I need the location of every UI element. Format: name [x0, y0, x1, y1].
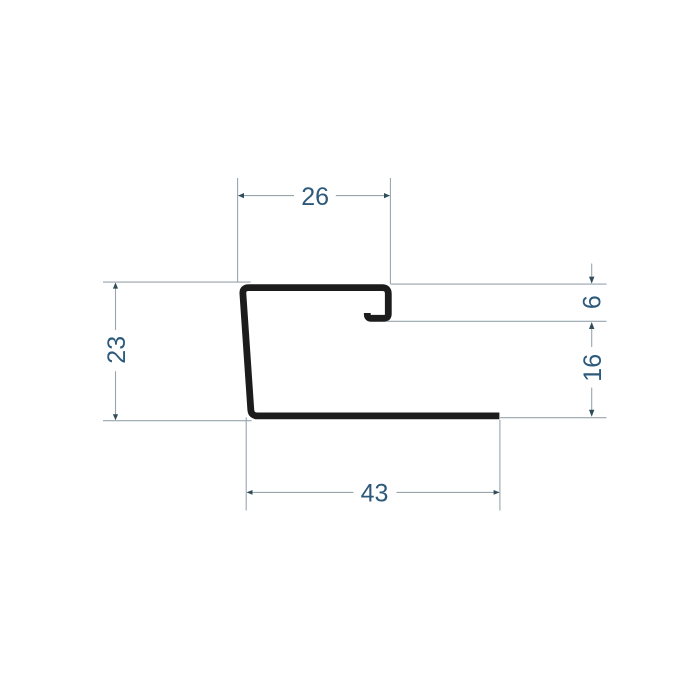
svg-text:26: 26	[301, 183, 329, 211]
svg-text:16: 16	[579, 354, 607, 382]
svg-text:23: 23	[103, 336, 131, 364]
svg-text:6: 6	[578, 295, 606, 309]
svg-text:43: 43	[361, 480, 389, 508]
